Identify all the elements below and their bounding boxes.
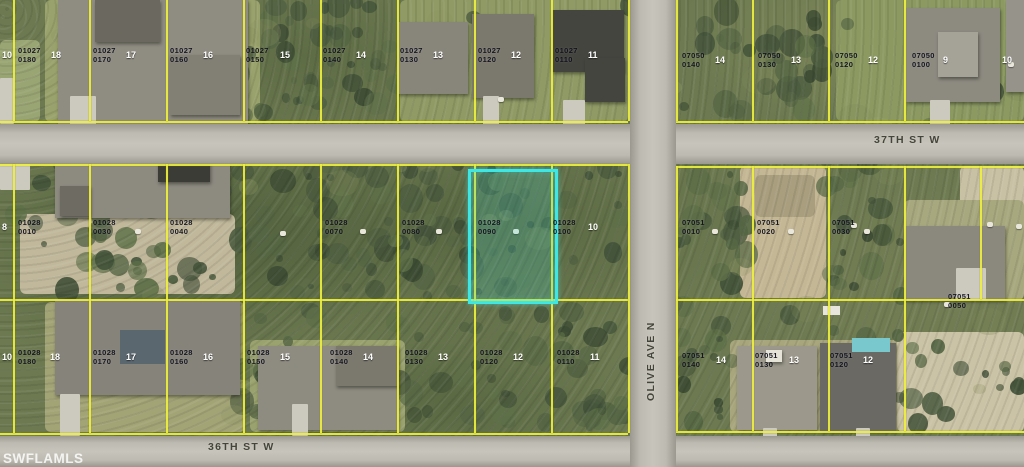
parcel-id-label: 010270170 [93,47,116,64]
parcel-id-label: 010280140 [330,349,353,366]
parcel-id-label: 010280120 [480,349,503,366]
parcel-id-label: 070500100 [912,52,935,69]
parcel-lot-number: 0180 [18,56,41,65]
parcel-lot-number: 0100 [912,61,935,70]
parcel-lot-number: 0020 [757,228,780,237]
parcel-id-label-highlighted: 010280090 [478,219,501,236]
lot-number-marker: 18 [50,352,60,362]
lot-number-marker: 13 [433,50,443,60]
lot-number-marker: 17 [126,352,136,362]
parcel-id-label: 010280070 [325,219,348,236]
parcel-id-label: 070510140 [682,352,705,369]
parcel-lot-number: 0140 [682,361,705,370]
mls-watermark: SWFLAMLS [3,451,84,466]
parcel-id-label: 010280130 [405,349,428,366]
parcel-lot-number: 0120 [478,56,501,65]
parcel-lot-number: 0090 [478,228,501,237]
parcel-lot-number: 0110 [557,358,580,367]
lot-number-marker: 11 [588,50,598,60]
parcel-lot-number: 0150 [247,358,270,367]
parcel-lot-number: 0030 [832,228,855,237]
parcel-id-label: 010280160 [170,349,193,366]
lot-number-marker: 12 [863,355,873,365]
lot-number-marker: 18 [51,50,61,60]
parcel-id-label: 010280080 [402,219,425,236]
lot-number-marker: 13 [791,55,801,65]
street-name-label: OLIVE AVE N [645,321,657,401]
parcel-lot-number: 0160 [170,358,193,367]
lot-number-marker: 10 [1002,55,1012,65]
parcel-lot-number: 0010 [682,228,705,237]
parcel-id-label: 010270150 [246,47,269,64]
lot-number-marker: 13 [789,355,799,365]
lot-number-marker: 15 [280,352,290,362]
lot-number-marker: 12 [868,55,878,65]
lot-number-marker: 9 [943,55,948,65]
parcel-id-label: 070500130 [758,52,781,69]
parcel-lot-number: 0150 [246,56,269,65]
parcel-id-label: 010270180 [18,47,41,64]
parcel-id-label: 070500120 [835,52,858,69]
lot-number-marker: 12 [513,352,523,362]
lot-number-marker: 12 [511,50,521,60]
parcel-id-label: 010270130 [400,47,423,64]
parcel-lot-number: 0130 [758,61,781,70]
parcel-id-label: 010270120 [478,47,501,64]
lot-number-marker: 14 [356,50,366,60]
parcel-lot-number: 0130 [405,358,428,367]
parcel-lot-number: 0140 [323,56,346,65]
lot-number-marker: 17 [126,50,136,60]
parcel-lot-number: 0070 [325,228,348,237]
lot-number-marker: 14 [715,55,725,65]
parcel-lot-number: 0120 [480,358,503,367]
parcel-id-label: 010280010 [18,219,41,236]
parcel-lot-number: 0080 [402,228,425,237]
parcel-id-label: 070510020 [757,219,780,236]
parcel-lot-number: 0130 [400,56,423,65]
parcel-id-label: 010280110 [557,349,580,366]
parcel-id-label: 010280180 [18,349,41,366]
parcel-id-label: 070510010 [682,219,705,236]
lot-number-marker: 14 [716,355,726,365]
parcel-lot-number: 0180 [18,358,41,367]
lot-number-marker: 16 [203,352,213,362]
parcel-id-label: 070510130 [755,352,778,369]
lot-number-marker: 13 [438,352,448,362]
parcel-id-label: 010280150 [247,349,270,366]
parcel-lot-number: 0030 [93,228,116,237]
parcel-id-label: 010280100 [553,219,576,236]
parcel-lot-number: 0040 [170,228,193,237]
parcel-lot-number: 0170 [93,56,116,65]
lot-number-marker: 8 [2,222,7,232]
parcel-lot-number: 0130 [755,361,778,370]
parcel-lot-number: 0170 [93,358,116,367]
parcel-id-label: 070510120 [830,352,853,369]
parcel-lot-number: 0120 [830,361,853,370]
parcel-lot-number: 0100 [553,228,576,237]
parcel-lot-number: 0140 [330,358,353,367]
parcel-lot-number: 0160 [170,56,193,65]
parcel-id-label: 010270110 [555,47,578,64]
parcel-lot-number: 0140 [682,61,705,70]
parcel-id-label: 010280040 [170,219,193,236]
lot-number-marker: 11 [590,352,600,362]
parcel-lot-number: 0050 [948,302,971,311]
lot-number-marker: 10 [2,50,12,60]
lot-number-marker: 10 [2,352,12,362]
lot-number-marker: 15 [280,50,290,60]
street-name-label: 37TH ST W [874,134,941,146]
parcel-lot-number: 0120 [835,61,858,70]
parcel-id-label: 010280030 [93,219,116,236]
aerial-parcel-map[interactable]: 0102701800102701700102701600102701500102… [0,0,1024,467]
parcel-id-label: 070510050 [948,293,971,310]
labels-layer: 0102701800102701700102701600102701500102… [0,0,1024,467]
parcel-lot-number: 0110 [555,56,578,65]
lot-number-marker: 16 [203,50,213,60]
street-name-label: 36TH ST W [208,441,275,453]
parcel-lot-number: 0010 [18,228,41,237]
parcel-id-label: 070510030 [832,219,855,236]
parcel-id-label: 070500140 [682,52,705,69]
lot-number-marker: 14 [363,352,373,362]
parcel-id-label: 010280170 [93,349,116,366]
parcel-id-label: 010270160 [170,47,193,64]
lot-number-marker: 10 [588,222,598,232]
parcel-id-label: 010270140 [323,47,346,64]
